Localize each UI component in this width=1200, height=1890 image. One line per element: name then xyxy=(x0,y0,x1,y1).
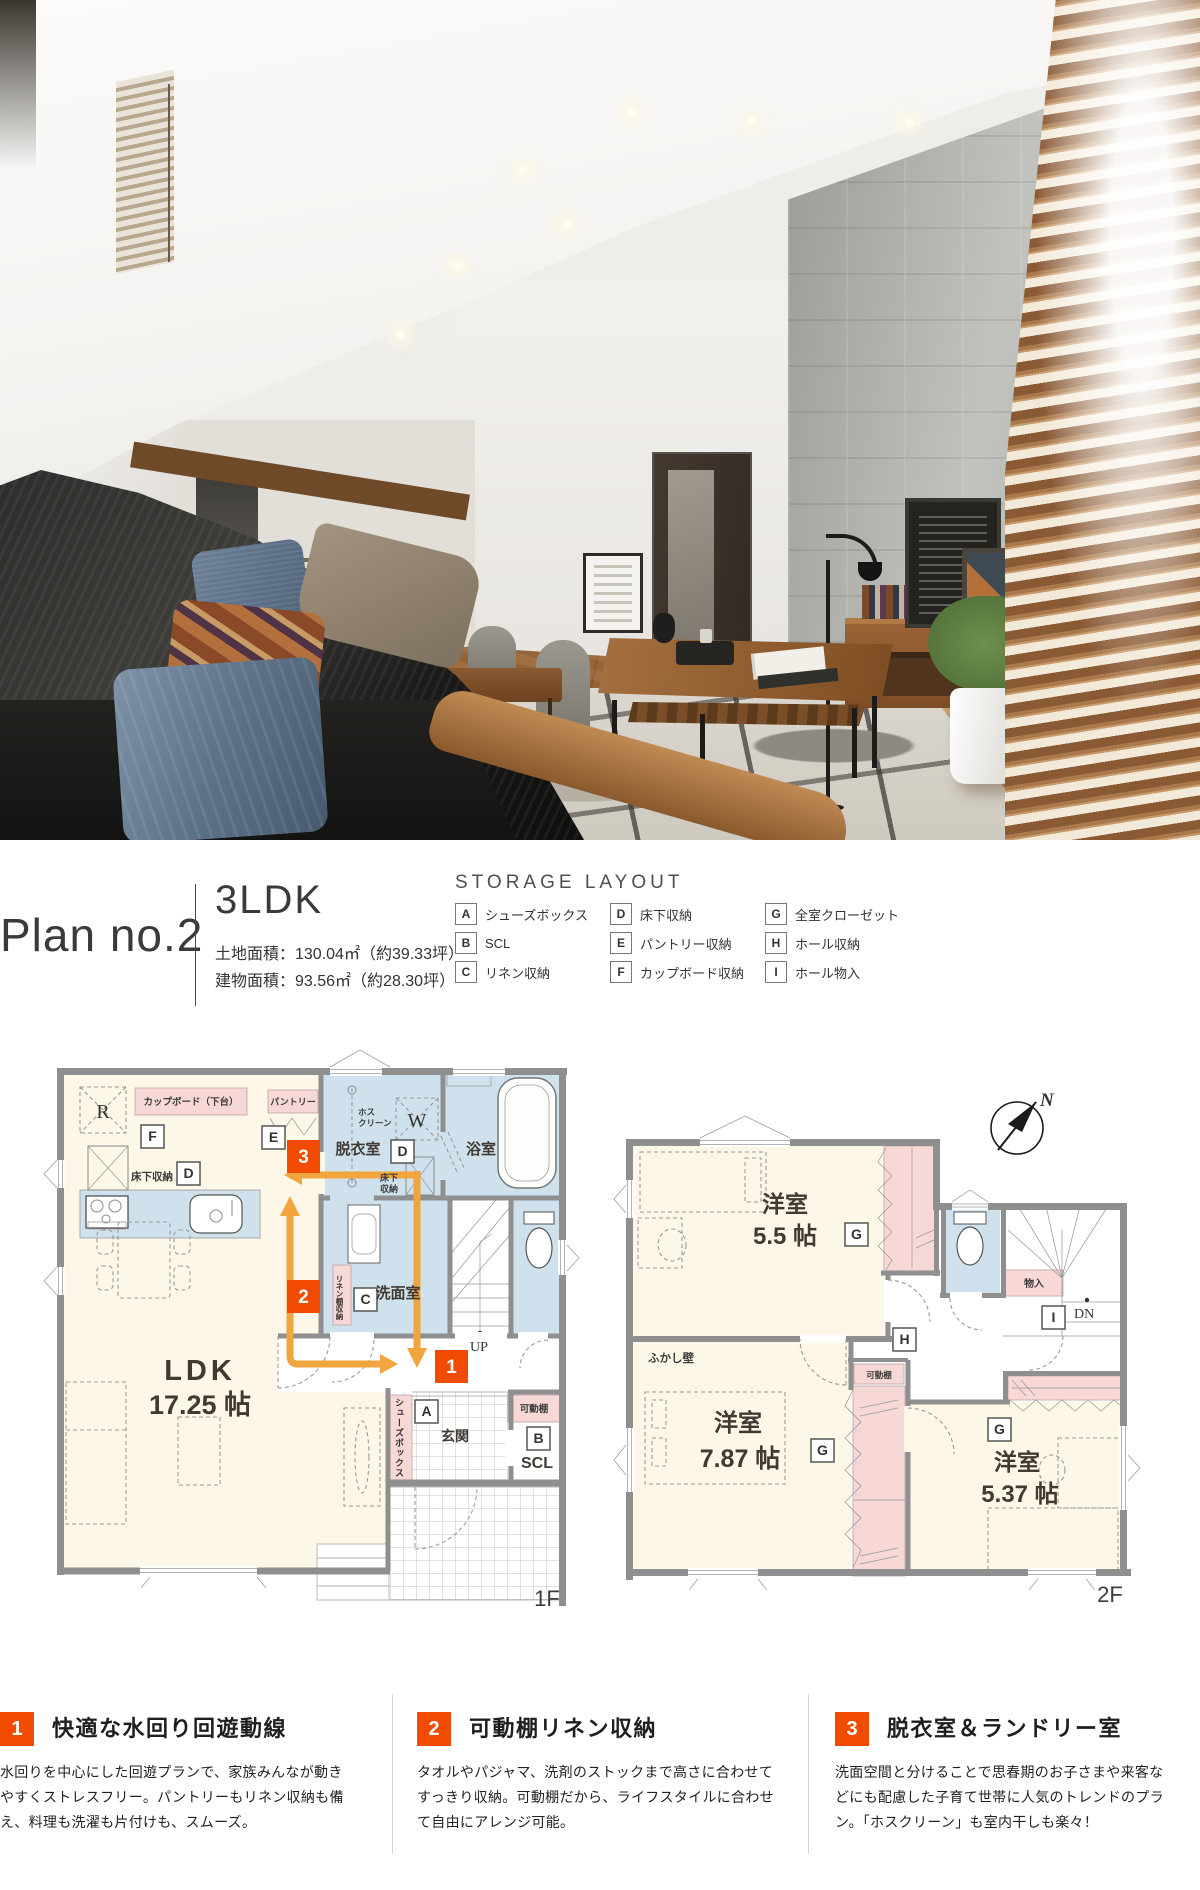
downlight xyxy=(562,220,571,229)
legend-label: リネン収納 xyxy=(485,963,550,982)
feature-title-3: 脱衣室＆ランドリー室 xyxy=(887,1712,1122,1746)
letter: D xyxy=(183,1165,193,1181)
arrowhead xyxy=(407,1348,427,1368)
ldk-label: LDK xyxy=(164,1355,236,1387)
room-537-size: 5.37 帖 xyxy=(981,1481,1058,1508)
downlight xyxy=(518,165,527,174)
legend-letter-a: A xyxy=(455,903,477,925)
shoes-box-vertical-label: シューズボックス xyxy=(393,1396,406,1480)
door-opening xyxy=(950,1292,982,1299)
legend-label: パントリー収納 xyxy=(640,934,732,953)
badge-number: 2 xyxy=(428,1718,439,1741)
legend-item-shoes-box: A シューズボックス xyxy=(455,903,588,925)
legend-letter-c: C xyxy=(455,961,477,983)
refrigerator-r: R xyxy=(96,1101,110,1123)
stair-opening xyxy=(455,1332,507,1340)
room-537-label: 洋室 xyxy=(994,1449,1040,1475)
toilet-bowl xyxy=(957,1227,983,1265)
monoire-label: 物入 xyxy=(1024,1277,1044,1290)
legend-letter-i: I xyxy=(765,961,787,983)
underfloor-label-l2: 収納 xyxy=(380,1183,398,1194)
downlight xyxy=(747,116,756,125)
compass-icon: N xyxy=(991,1090,1055,1154)
room-787-size: 7.87 帖 xyxy=(700,1445,781,1473)
pantry-label: パントリー xyxy=(270,1096,315,1107)
legend-item-hall-storage: H ホール収納 xyxy=(765,932,860,954)
feature-title-1: 快適な水回り回遊動線 xyxy=(52,1712,287,1746)
legend-letter-h: H xyxy=(765,932,787,954)
header-divider xyxy=(195,884,196,1006)
badge-number: 3 xyxy=(298,1147,309,1168)
land-area-text: 土地面積：130.04㎡（約39.33坪） xyxy=(215,940,464,964)
kitchen-sink xyxy=(190,1195,242,1233)
letter: G xyxy=(817,1442,828,1458)
underfloor-label-l1: 床下 xyxy=(380,1172,398,1183)
legend-item-underfloor: D 床下収納 xyxy=(610,903,692,925)
dn-label: DN xyxy=(1074,1307,1094,1322)
hoscreen-label-l2: クリーン xyxy=(358,1118,392,1128)
floor-plans: 3 2 1 F E D D C A B LDK 17.25 帖 脱衣室 浴室 洗… xyxy=(0,1040,1200,1680)
senmen-label: 洗面室 xyxy=(375,1284,420,1302)
coffee-table-top xyxy=(598,638,893,702)
toilet-tank xyxy=(954,1212,986,1224)
cupboard-label: カップボード（下台） xyxy=(143,1096,238,1108)
legend-label: 床下収納 xyxy=(640,905,692,924)
wall-art xyxy=(594,564,632,622)
underfloor-label: 床下収納 xyxy=(131,1170,173,1183)
letter: H xyxy=(899,1331,909,1347)
door-arc-toilet xyxy=(520,1340,548,1368)
floor-plan-2f: G G G H I 洋室 5.5 帖 洋室 7.87 帖 洋室 5.37 帖 ふ… xyxy=(614,1090,1140,1607)
washer-w: W xyxy=(408,1110,427,1132)
badge-number: 3 xyxy=(846,1718,857,1741)
feature-badge-1: 1 xyxy=(0,1712,34,1746)
legend-letter-b: B xyxy=(455,932,477,954)
letter: I xyxy=(1052,1309,1056,1325)
letter: D xyxy=(397,1143,407,1159)
door-opening xyxy=(904,1406,912,1452)
legend-letter-f: F xyxy=(610,961,632,983)
floor-label-2f: 2F xyxy=(1097,1582,1123,1607)
feature-body-1: 水回りを中心にした回遊プランで、家族みんなが動きやすくストレスフリー。パントリー… xyxy=(0,1760,350,1835)
arrowhead xyxy=(380,1354,398,1374)
toilet-tank xyxy=(524,1212,554,1224)
downlight xyxy=(627,108,636,117)
stair-winders xyxy=(1008,1206,1108,1278)
table-tray xyxy=(676,641,734,665)
door-opening xyxy=(800,1335,846,1343)
closet-55 xyxy=(884,1146,937,1273)
door-arc-toilet-2f xyxy=(950,1298,982,1330)
legend-item-pantry: E パントリー収納 xyxy=(610,932,732,954)
letter: B xyxy=(533,1430,543,1446)
badge-number: 1 xyxy=(446,1357,457,1378)
legend-letter-e: E xyxy=(610,932,632,954)
door-opening xyxy=(518,1332,548,1340)
floor-plan-1f: 3 2 1 F E D D C A B LDK 17.25 帖 脱衣室 浴室 洗… xyxy=(44,1050,579,1611)
legend-label: ホール収納 xyxy=(795,934,860,953)
door-arc-stairs xyxy=(1029,1336,1063,1370)
living-room-photo xyxy=(0,0,1200,840)
up-label: UP xyxy=(470,1340,488,1355)
legend-label: 全室クローゼット xyxy=(795,905,899,924)
legend-item-scl: B SCL xyxy=(455,932,510,954)
legend-label: SCL xyxy=(485,936,510,951)
left-window-blind xyxy=(116,70,174,274)
letter: C xyxy=(360,1291,370,1307)
floor-label-1f: 1F xyxy=(534,1586,560,1611)
stair-dot xyxy=(1085,1298,1089,1302)
linen-shelf-vertical-label: リネン棚収納 xyxy=(334,1267,345,1327)
fukashi-label: ふかし壁 xyxy=(648,1351,694,1365)
legend-label: シューズボックス xyxy=(485,905,588,924)
door-opening xyxy=(330,1194,374,1202)
legend-label: ホール物入 xyxy=(795,963,860,982)
storage-layout-heading: STORAGE LAYOUT xyxy=(455,872,683,894)
door-opening xyxy=(884,1280,892,1322)
feature-divider xyxy=(392,1694,393,1854)
coffee-table-leg xyxy=(872,696,877,768)
door-opening xyxy=(505,1430,514,1466)
legend-item-cupboard: F カップボード収納 xyxy=(610,961,744,983)
bath-label: 浴室 xyxy=(466,1140,496,1158)
letter: G xyxy=(851,1226,862,1242)
room-55-label: 洋室 xyxy=(762,1191,808,1217)
floor-plans-svg: 3 2 1 F E D D C A B LDK 17.25 帖 脱衣室 浴室 洗… xyxy=(0,1040,1200,1680)
ldk-size-label: 17.25 帖 xyxy=(149,1390,251,1420)
toilet-bowl xyxy=(526,1228,552,1268)
north-label: N xyxy=(1039,1090,1055,1111)
genkan-label: 玄関 xyxy=(441,1428,469,1444)
legend-label: カップボード収納 xyxy=(640,963,744,982)
book-stack xyxy=(862,585,906,619)
coffee-kettle xyxy=(653,613,675,643)
corner-shadow xyxy=(0,0,36,170)
room-787-label: 洋室 xyxy=(714,1409,762,1437)
feature-title-2: 可動棚リネン収納 xyxy=(469,1712,657,1746)
denim-cushion-large xyxy=(112,656,329,840)
scl-label: SCL xyxy=(521,1455,553,1472)
plan-number-title: Plan no.2 xyxy=(0,908,203,962)
feature-body-2: タオルやパジャマ、洗剤のストックまで高さに合わせてすっきり収納。可動棚だから、ラ… xyxy=(417,1760,779,1835)
movable-shelf-label-2f: 可動棚 xyxy=(866,1370,892,1380)
legend-item-hall-closet: I ホール物入 xyxy=(765,961,860,983)
legend-item-linen: C リネン収納 xyxy=(455,961,550,983)
letter: G xyxy=(994,1421,1005,1437)
coffee-table-shelf xyxy=(628,702,866,726)
door-arc-55 xyxy=(888,1280,930,1322)
building-area-text: 建物面積：93.56㎡（約28.30坪） xyxy=(215,967,455,991)
legend-item-closet: G 全室クローゼット xyxy=(765,903,899,925)
badge-number: 2 xyxy=(298,1287,309,1308)
wall-art-frame xyxy=(583,553,643,633)
letter: A xyxy=(421,1403,431,1419)
closet-787 xyxy=(853,1386,905,1576)
hoscreen-label-l1: ホス xyxy=(358,1107,375,1117)
coffee-cup xyxy=(700,629,712,643)
datsui-label: 脱衣室 xyxy=(335,1140,380,1158)
plan-type-heading: 3LDK xyxy=(215,878,323,923)
feature-divider xyxy=(808,1694,809,1854)
movable-shelf-label: 可動棚 xyxy=(520,1403,549,1415)
downlight xyxy=(396,330,405,339)
feature-body-3: 洗面空間と分けることで思春期のお子さまや来客などにも配慮した子育て世帯に人気のト… xyxy=(835,1760,1175,1835)
feature-badge-3: 3 xyxy=(835,1712,869,1746)
blind-cord xyxy=(168,84,170,262)
badge-number: 1 xyxy=(11,1718,22,1741)
coffee-table-leg xyxy=(852,708,857,778)
legend-letter-d: D xyxy=(610,903,632,925)
feature-sections: 1 快適な水回り回遊動線 水回りを中心にした回遊プランで、家族みんなが動きやすく… xyxy=(0,1690,1200,1890)
letter: F xyxy=(148,1128,157,1144)
legend-letter-g: G xyxy=(765,903,787,925)
feature-badge-2: 2 xyxy=(417,1712,451,1746)
door-opening xyxy=(330,1332,374,1340)
room-55-size: 5.5 帖 xyxy=(753,1223,817,1250)
letter: E xyxy=(269,1129,278,1145)
downlight xyxy=(905,118,914,127)
downlight xyxy=(452,262,461,271)
